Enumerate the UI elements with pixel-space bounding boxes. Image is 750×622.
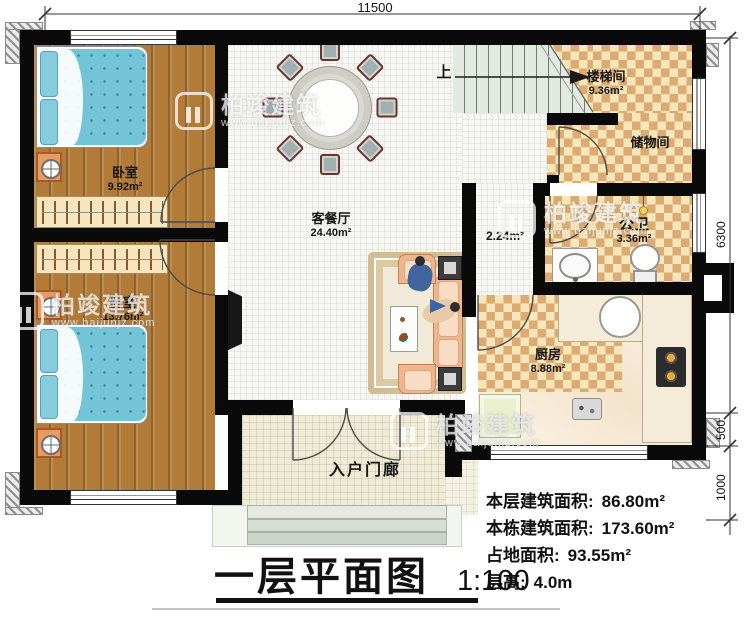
window — [70, 30, 177, 45]
room-area: 3.36m² — [592, 233, 676, 246]
hatch-block — [706, 43, 719, 67]
wardrobe — [36, 196, 168, 228]
room-area: 9.36m² — [568, 85, 644, 98]
porch-floor — [242, 415, 445, 505]
entry-step — [247, 505, 447, 519]
entry-step — [247, 519, 447, 532]
label-bedroom1: 卧室 9.92m² — [70, 166, 180, 194]
sofa-cushion — [438, 339, 459, 366]
dimension-top: 11500 — [330, 0, 420, 15]
wall-segment — [215, 45, 228, 168]
room-area: 9.92m² — [70, 181, 180, 194]
label-living: 客餐厅 24.40m² — [276, 212, 386, 240]
wardrobe-hangers — [42, 201, 163, 224]
wall-under-stairs — [547, 113, 618, 125]
pillow — [40, 51, 58, 97]
nightstand — [36, 428, 62, 458]
info-value: 86.80m² — [602, 488, 665, 515]
cutting-board — [572, 398, 602, 420]
wall-bath-left — [533, 196, 545, 282]
floor-plan: 11500 6300 500 1000 卧室 9.92m² 卧室 13.76m²… — [0, 0, 750, 622]
wall-bath-top-left — [533, 183, 550, 196]
info-label: 本层建筑面积: — [486, 488, 594, 515]
room-name: 卧室 — [70, 166, 180, 181]
side-table — [438, 256, 462, 280]
room-area: 2.24m² — [476, 230, 534, 244]
hallway-floor-upper — [462, 113, 547, 183]
armchair — [398, 364, 436, 394]
wall-kitchen-top — [533, 282, 692, 295]
person-head — [450, 302, 460, 312]
nightstand — [36, 290, 62, 320]
bathroom-sink — [559, 253, 591, 279]
dining-chair — [263, 98, 284, 118]
drawing-title: 一层平面图 — [214, 544, 429, 602]
label-up-direction: 上 — [432, 64, 456, 81]
up-text: 上 — [432, 64, 456, 81]
kitchen-sink — [599, 296, 641, 338]
tv — [228, 288, 242, 352]
room-area: 13.76m² — [68, 311, 178, 324]
window — [490, 445, 648, 460]
label-bedroom2: 卧室 13.76m² — [68, 296, 178, 324]
wall-storage-left — [547, 175, 559, 183]
nightstand — [36, 152, 62, 182]
window — [692, 193, 706, 253]
label-hallway: 2.24m² — [476, 230, 534, 244]
hatch-block — [5, 22, 43, 30]
room-area: 24.40m² — [276, 227, 386, 240]
label-storage: 储物间 — [610, 136, 690, 151]
dimension-right-mid: 500 — [714, 414, 728, 446]
flower-decor — [399, 333, 410, 344]
hatch-block — [672, 460, 710, 469]
dimension-right-main: 6300 — [714, 195, 728, 275]
pillow — [40, 375, 58, 419]
side-table — [438, 367, 462, 391]
room-name: 入户门廊 — [295, 462, 435, 480]
armchair-cushion — [404, 370, 432, 391]
wall-storage-bottom — [597, 183, 692, 196]
label-kitchen: 厨房 8.88m² — [508, 348, 588, 376]
pillow — [40, 99, 58, 145]
dining-table-top — [301, 79, 359, 137]
info-value: 173.60m² — [602, 515, 675, 542]
title-underline — [216, 598, 478, 603]
wardrobe-hangers — [42, 249, 163, 270]
pillow — [40, 329, 58, 373]
title-underline-thin — [152, 608, 560, 610]
flue-hole — [704, 275, 722, 301]
window — [70, 490, 177, 505]
room-name: 储物间 — [610, 136, 690, 151]
wall-porch-left — [228, 402, 242, 490]
label-bathroom: 公卫 3.36m² — [592, 216, 676, 246]
wall-bedroom-divider — [34, 228, 228, 242]
room-name: 公卫 — [592, 216, 676, 233]
bed — [36, 46, 148, 148]
kitchen-cabinet — [479, 394, 521, 438]
info-value: 93.55m² — [568, 542, 631, 569]
room-area: 8.88m² — [508, 363, 588, 376]
hatch-block — [5, 507, 43, 515]
table-decor — [400, 317, 405, 322]
window — [692, 78, 706, 150]
room-name: 卧室 — [68, 296, 178, 311]
drawing-title-row: 一层平面图 1:100 — [214, 544, 530, 602]
room-name: 楼梯间 — [568, 70, 644, 85]
hatch-block — [690, 21, 716, 30]
toilet-bowl — [630, 244, 660, 272]
person-head — [415, 256, 425, 266]
wall-left — [20, 30, 34, 505]
hatch-block — [455, 414, 472, 452]
wall-living-bottom-left — [215, 400, 293, 415]
label-porch: 入户门廊 — [295, 462, 435, 480]
bathroom-vanity — [552, 248, 598, 284]
bed — [36, 324, 148, 424]
wall-segment — [215, 295, 228, 402]
info-row: 本栋建筑面积: 173.60m² — [486, 515, 674, 542]
lamp-icon — [41, 435, 61, 455]
dimension-right-bottom: 1000 — [714, 462, 728, 514]
info-value: 4.0m — [534, 569, 573, 596]
room-name: 客餐厅 — [276, 212, 386, 227]
stove — [656, 347, 686, 387]
drawing-scale: 1:100 — [457, 565, 530, 598]
label-stairwell: 楼梯间 9.36m² — [568, 70, 644, 98]
coffee-table — [390, 306, 418, 352]
wall-living-hallway — [462, 183, 476, 317]
dining-chair — [377, 98, 398, 118]
lamp-icon — [41, 297, 61, 317]
info-label: 本栋建筑面积: — [486, 515, 594, 542]
lamp-icon — [41, 159, 61, 179]
light-pull-knob — [639, 206, 648, 215]
info-row: 本层建筑面积: 86.80m² — [486, 488, 674, 515]
room-name: 厨房 — [508, 348, 588, 363]
dining-chair — [320, 154, 340, 175]
wardrobe — [36, 244, 168, 274]
wall-segment — [215, 222, 228, 242]
